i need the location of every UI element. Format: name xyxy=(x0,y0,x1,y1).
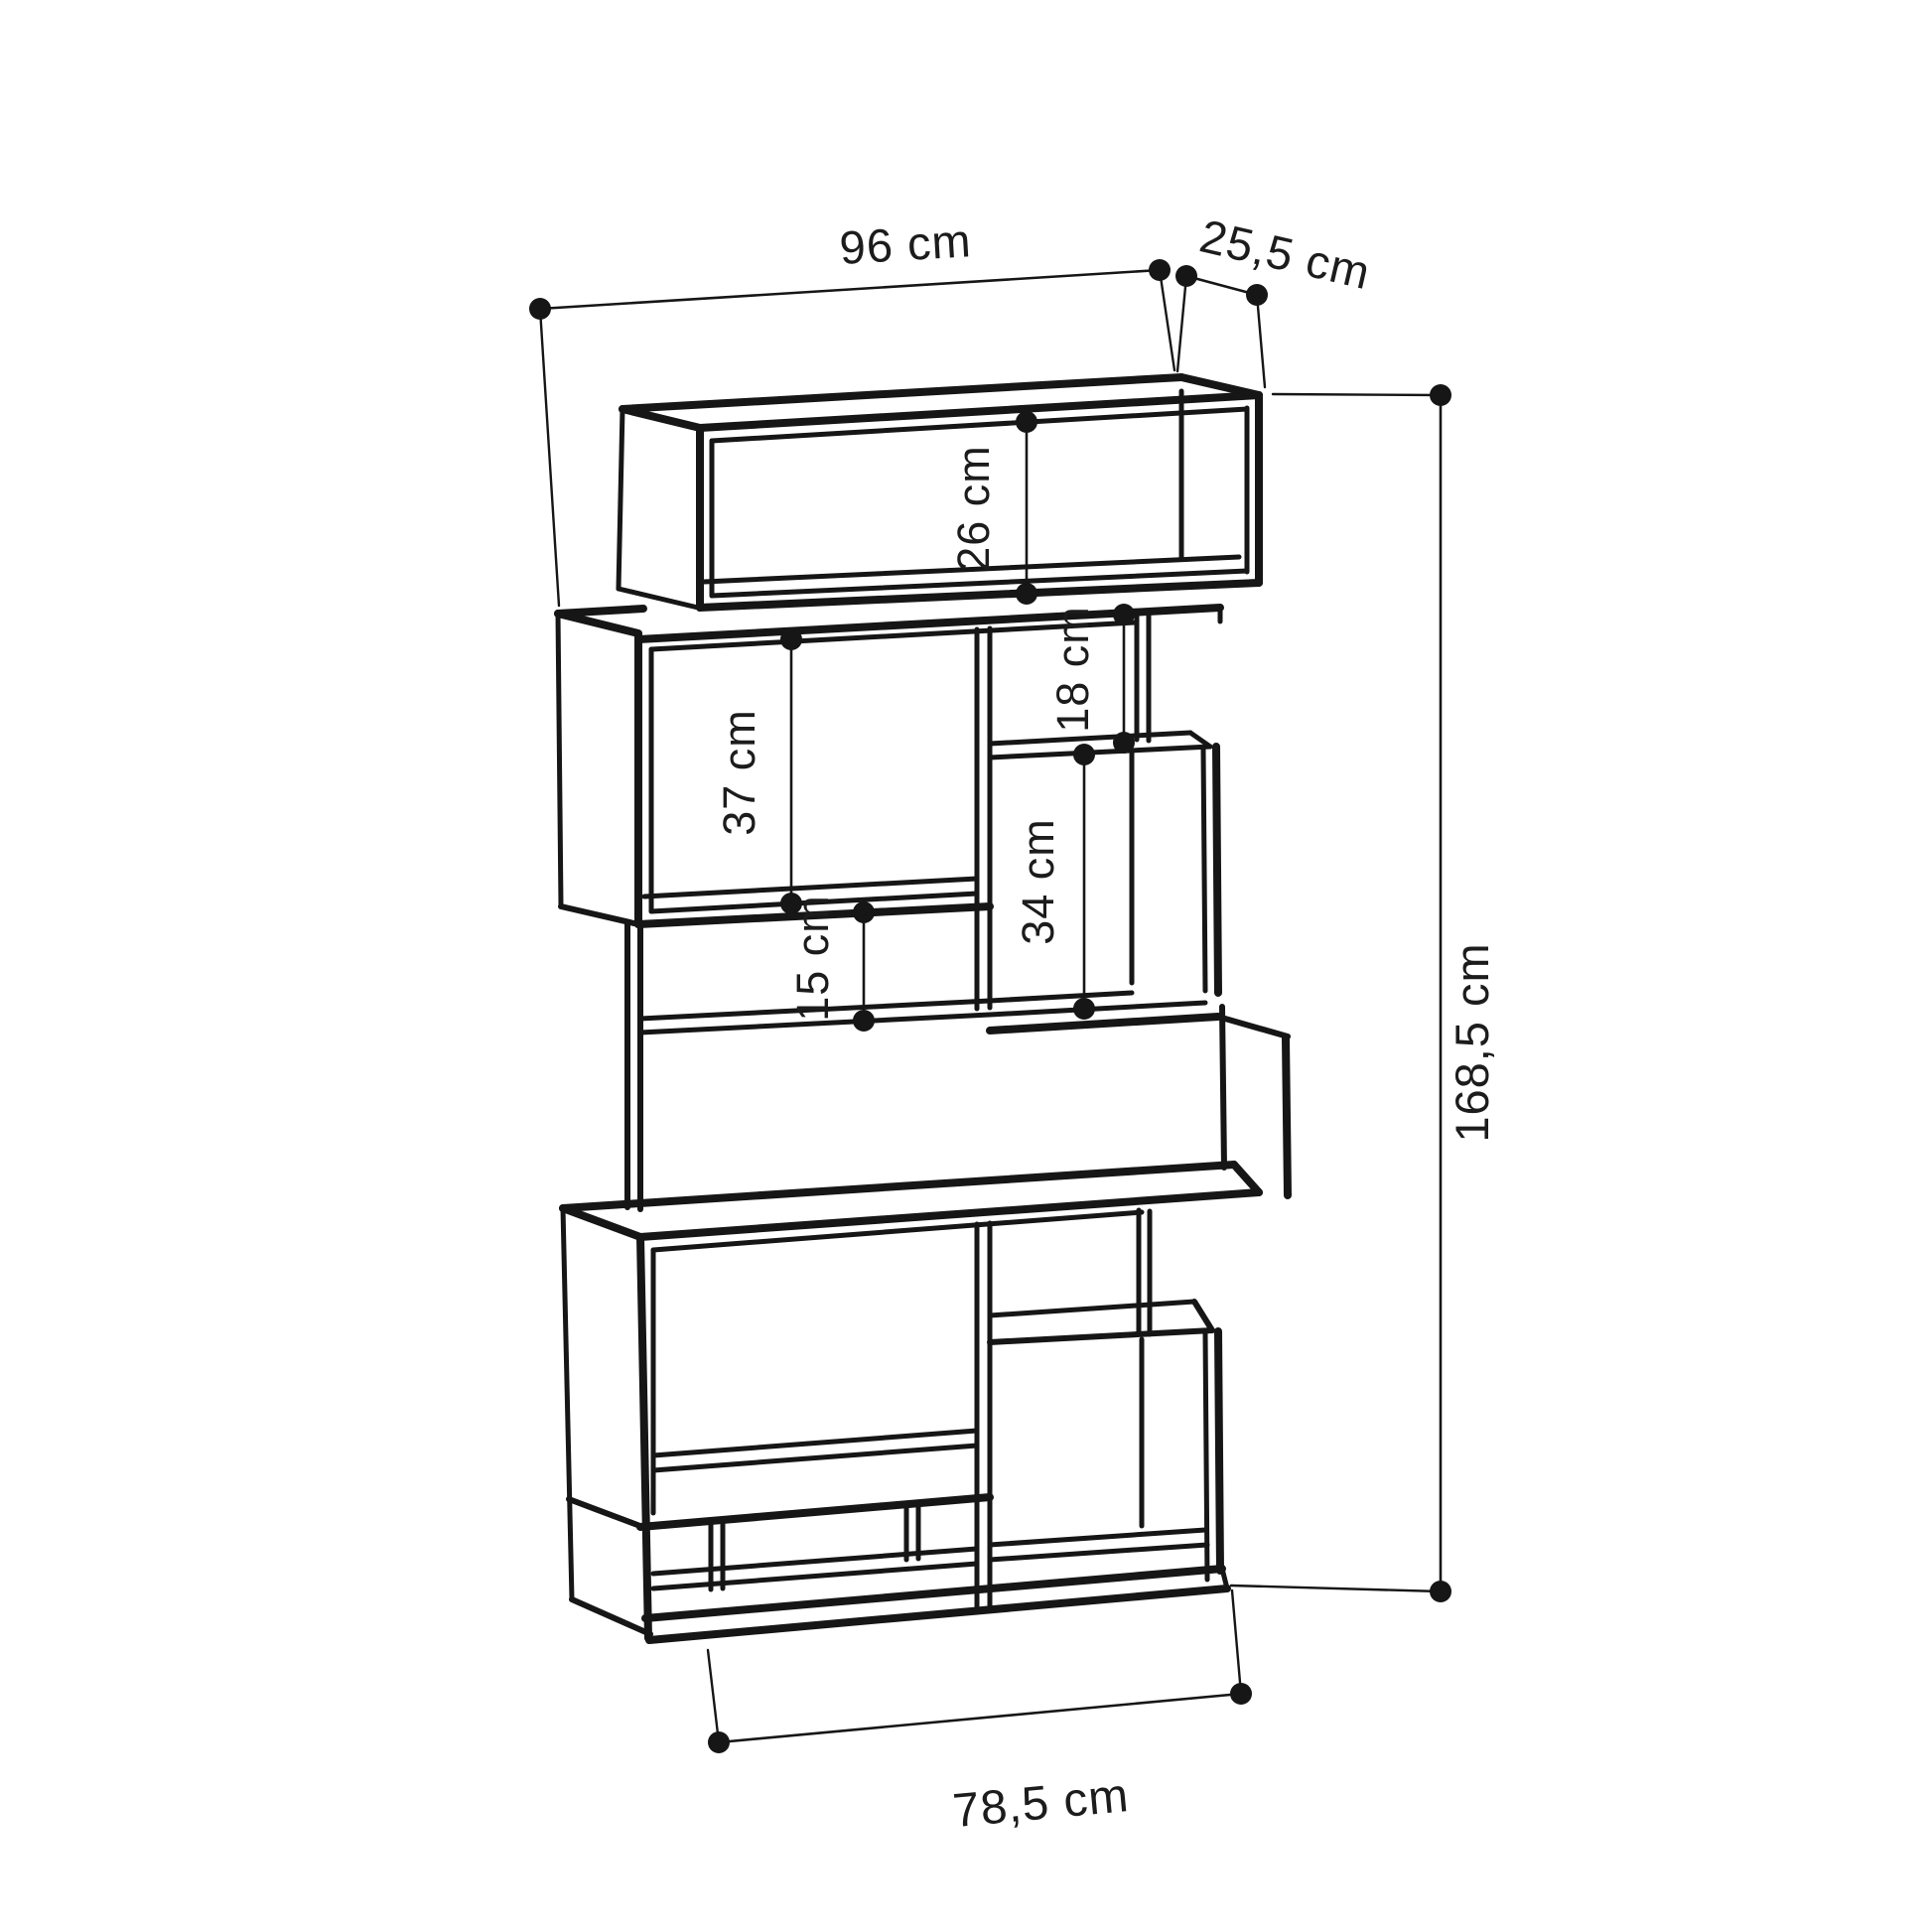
dim-right-gap-height: 18 cm xyxy=(1047,604,1135,754)
dim-height-total-endpoint xyxy=(1430,384,1451,406)
dim-depth-top-endpoint xyxy=(1175,265,1197,287)
dim-right-gap-height-label: 18 cm xyxy=(1047,606,1098,733)
dim-depth-top: 25,5 cm xyxy=(1175,209,1376,387)
middle-box xyxy=(563,924,1288,1237)
dim-top-box-inner-height-label: 26 cm xyxy=(948,445,999,572)
dim-right-box-height-endpoint xyxy=(1073,998,1095,1020)
dim-right-box-height-endpoint xyxy=(1073,744,1095,765)
dim-middle-gap-height-endpoint xyxy=(853,1010,875,1032)
dim-middle-gap-height-endpoint xyxy=(853,901,875,923)
top-box xyxy=(619,377,1259,608)
dim-width-bottom-label: 78,5 cm xyxy=(951,1769,1132,1838)
dim-top-box-inner-height-endpoint xyxy=(1016,583,1037,605)
second-tier xyxy=(558,608,1220,1031)
dim-left-compartment-height-endpoint xyxy=(780,628,802,650)
dim-middle-gap-height-label: 15 cm xyxy=(787,895,838,1022)
diagram-page: 96 cm25,5 cm168,5 cm26 cm37 cm18 cm34 cm… xyxy=(0,0,1932,1932)
bookcase-dimension-diagram: 96 cm25,5 cm168,5 cm26 cm37 cm18 cm34 cm… xyxy=(0,0,1932,1932)
dim-right-gap-height-endpoint xyxy=(1113,732,1135,754)
dim-height-total: 168,5 cm xyxy=(1231,384,1498,1602)
dim-height-total-endpoint xyxy=(1430,1581,1451,1602)
dim-width-top-endpoint xyxy=(529,298,551,320)
dim-top-box-inner-height: 26 cm xyxy=(948,411,1037,605)
dim-right-box-height: 34 cm xyxy=(1013,744,1095,1020)
bookcase-outline xyxy=(558,377,1288,1640)
dim-left-compartment-height: 37 cm xyxy=(714,628,802,914)
dim-width-top-endpoint xyxy=(1149,259,1171,281)
dim-middle-gap-height: 15 cm xyxy=(787,895,875,1032)
dim-width-top-label: 96 cm xyxy=(838,213,973,274)
dim-width-bottom-endpoint xyxy=(708,1731,730,1753)
dimension-annotations: 96 cm25,5 cm168,5 cm26 cm37 cm18 cm34 cm… xyxy=(529,209,1498,1839)
bottom-tier xyxy=(645,1331,1227,1640)
dim-depth-top-endpoint xyxy=(1246,284,1268,306)
dim-top-box-inner-height-endpoint xyxy=(1016,411,1037,433)
dim-width-bottom-endpoint xyxy=(1230,1683,1252,1705)
dim-left-compartment-height-label: 37 cm xyxy=(714,709,764,836)
dim-height-total-label: 168,5 cm xyxy=(1446,942,1498,1142)
dim-right-box-height-label: 34 cm xyxy=(1013,818,1063,945)
dim-right-gap-height-endpoint xyxy=(1113,604,1135,625)
